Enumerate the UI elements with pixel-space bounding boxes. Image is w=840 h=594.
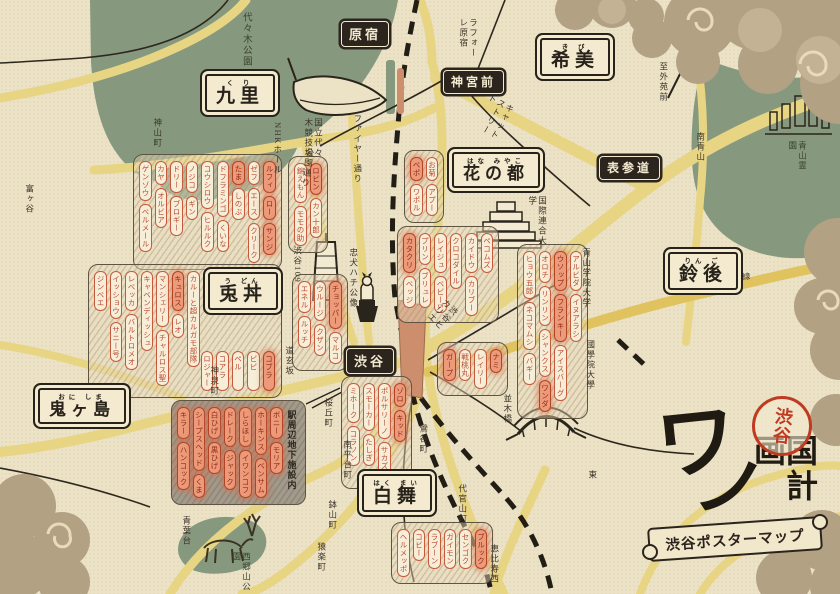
poster-label: 白ひげ — [208, 407, 221, 439]
poster-label: ペル — [232, 351, 245, 391]
poster-label: ベポ — [410, 157, 423, 181]
label-aoyama-gakuin: 青山学院大学 — [581, 248, 591, 308]
poster-label: サニー号 — [110, 322, 123, 362]
label-to-gaienmae: 至外苑前 — [658, 62, 668, 102]
label-laforet-harajuku: ラフォーレ原宿 — [458, 18, 478, 64]
label-hachiko-statue: 忠犬ハチ公像 — [348, 248, 358, 308]
poster-label: リンリン — [539, 286, 552, 326]
poster-label: シープスヘッド — [193, 407, 206, 471]
poster-label: モリア — [270, 442, 283, 474]
poster-label: ワポル — [410, 184, 423, 216]
poster-label: ルッチ — [298, 316, 311, 348]
poster-label: レベッカ — [125, 271, 138, 311]
poster-label: ドリー — [170, 161, 183, 193]
poster-label: ウルージ — [314, 281, 327, 321]
region-hananomiyako: はな みやこ 花の都 — [452, 152, 540, 188]
poster-label: クザン — [314, 324, 327, 356]
poster-label: ガイモン — [444, 529, 457, 569]
poster-label: ボニー — [270, 407, 283, 439]
label-nhk-hall: NHKホール — [272, 122, 282, 175]
poster-label: 黒ひげ — [208, 442, 221, 474]
label-shibuya-109: 渋谷109 — [292, 246, 302, 283]
poster-label: コウシロウ — [201, 161, 214, 209]
label-aoyama-cemetery: 青山霊園 — [787, 141, 807, 179]
station-omotesando: 表参道 — [599, 156, 660, 180]
poster-label: ドレーク — [224, 407, 237, 447]
banner-scroll-end-right — [812, 514, 828, 530]
poster-cluster-109: エネルルッチウルージクザンチョッパーマルコ — [292, 274, 348, 371]
poster-label: ラブーン — [428, 529, 441, 569]
poster-label: チャルロス聖 — [156, 330, 169, 386]
region-hakumai: はく まい 白舞 — [362, 474, 432, 512]
region-ringo: りん ご 鈴後 — [668, 252, 738, 290]
poster-label: ブリュレ — [419, 268, 432, 308]
poster-label: キッド — [394, 410, 407, 442]
poster-label: フランキー — [554, 294, 567, 342]
poster-label: レオ — [172, 314, 185, 338]
poster-label: たしぎ — [363, 434, 376, 466]
poster-label: ベンサム — [255, 458, 268, 498]
region-udon: う どん 兎丼 — [208, 272, 278, 310]
poster-cluster-kuri: ゲンゾウベルメールカヤオルビアドリーブロギーノジコギンコウシロウヒルルクドフラミ… — [133, 154, 282, 270]
poster-label: ベルメール — [139, 204, 152, 252]
poster-label: ベッジ — [403, 276, 416, 308]
label-yoyogi-park: 代々木公園 — [240, 12, 251, 67]
poster-label: カリブー — [465, 276, 478, 316]
station-shibuya: 渋谷 — [346, 348, 394, 374]
poster-label: エネル — [298, 281, 311, 313]
poster-label: ブロギー — [170, 196, 183, 236]
poster-label: ゼフ — [248, 161, 261, 185]
poster-label: レイリー — [474, 349, 487, 389]
poster-label: ウソップ — [554, 251, 567, 291]
poster-label: ジンベエ — [94, 271, 107, 311]
poster-label: サンジ — [263, 223, 276, 255]
poster-label: しらほし — [239, 407, 252, 447]
poster-label: シャンクス — [539, 329, 552, 377]
poster-label: ロー — [263, 196, 276, 220]
region-onigashima: おに しま 鬼ヶ島 — [38, 388, 126, 424]
underground-note: 駅周辺地下施設内 — [286, 410, 299, 490]
shibuya-poster-map: 原宿 神宮前 表参道 渋谷 く り 九里 き び 希美 はな みやこ 花の都 う… — [0, 0, 840, 594]
poster-cluster-station-east: ガープ戦桃丸レイリーナミ — [437, 342, 508, 396]
poster-cluster-underground: 駅周辺地下施設内 キラーハンコックシープスヘッドくま白ひげ黒ひげドレークジャック… — [171, 400, 306, 505]
poster-label: ヒルルク — [201, 212, 214, 252]
poster-label: バルトロメオ — [125, 314, 138, 370]
station-harajuku: 原宿 — [341, 21, 389, 47]
poster-label: バギー — [523, 353, 536, 385]
poster-label: 戦桃丸 — [459, 349, 472, 381]
poster-label: ドフラミンゴ — [217, 161, 230, 217]
poster-label: くいな — [217, 220, 230, 252]
banner-scroll-end-left — [642, 544, 658, 560]
poster-label: ビビ — [247, 351, 260, 391]
poster-label: マンシェリー — [156, 271, 169, 327]
label-saigoyama-park: 西郷山公園 — [231, 552, 251, 594]
label-kokugakuin: 國學院大學 — [585, 340, 595, 390]
region-kuri: く り 九里 — [205, 74, 275, 112]
region-kibi: き び 希美 — [540, 38, 610, 76]
poster-label: カイドウ — [465, 233, 478, 273]
label-aobadai: 青葉台 — [181, 516, 191, 546]
poster-label: ミホーク — [347, 383, 360, 423]
poster-label: ネコマムシ — [523, 302, 536, 350]
label-ebisu-nishi: 恵比寿西 — [489, 544, 499, 584]
label-daikanyamacho: 代官山町 — [457, 484, 467, 524]
label-higashi: 東 — [587, 470, 597, 480]
poster-label: たま — [232, 161, 245, 185]
poster-label: ヒョウ五郎 — [523, 251, 536, 299]
poster-label: ホーキンス — [255, 407, 268, 455]
label-tomigaya: 富ヶ谷 — [24, 184, 34, 214]
label-sarugakucho: 猿楽町 — [316, 542, 326, 572]
poster-label: カタクリ — [403, 233, 416, 273]
label-fire-dori: ファイヤー通り — [352, 114, 362, 184]
hachiko-statue-illustration — [356, 272, 378, 322]
poster-label: カルーと超カルガモ部隊 — [187, 271, 200, 367]
poster-label: ジャック — [224, 450, 237, 490]
label-dogenzaka: 道玄坂 — [284, 346, 294, 376]
poster-label: エース — [248, 188, 261, 220]
poster-label: ナミ — [490, 349, 503, 373]
label-kamiyamacho: 神山町 — [152, 118, 162, 148]
poster-label: モモの助 — [294, 206, 307, 246]
poster-label: キャベンディッシュ — [141, 271, 154, 351]
poster-label: ヘルメッポ — [397, 529, 410, 577]
poster-label: コブラ — [263, 351, 276, 391]
label-shinsencho: 神泉町 — [209, 366, 219, 396]
station-jingumae: 神宮前 — [443, 70, 504, 94]
poster-label: お菊 — [426, 157, 439, 181]
poster-label: ペコムズ — [481, 233, 494, 273]
label-hachiyamacho: 鉢山町 — [327, 500, 337, 530]
poster-label: レイジュ — [434, 233, 447, 273]
label-sakuragaokacho: 桜丘町 — [323, 398, 333, 428]
poster-cluster-hananomiyako-west: ベポワポルお菊アプー — [404, 150, 444, 223]
poster-label: オルビア — [155, 188, 168, 228]
poster-label: イワンコフ — [239, 450, 252, 498]
poster-label: しのぶ — [232, 188, 245, 220]
poster-label: スモーカー — [363, 383, 376, 431]
poster-label: マルコ — [329, 332, 342, 364]
poster-label: ギン — [186, 196, 199, 220]
harajuku-platform-shape — [397, 68, 404, 114]
poster-label: イッショウ — [110, 271, 123, 319]
poster-label: チョッパー — [329, 281, 342, 329]
poster-label: ポルサリーノ — [378, 383, 391, 439]
poster-label: キラー — [177, 407, 190, 439]
poster-label: プリン — [419, 233, 432, 265]
poster-label: ゲンゾウ — [139, 161, 152, 201]
poster-label: センゴク — [459, 529, 472, 569]
poster-label: ワンダ — [539, 380, 552, 412]
label-namikibashi: 並木橋 — [502, 394, 512, 424]
label-minami-aoyama: 南青山 — [695, 132, 705, 162]
poster-label: クリーク — [248, 223, 261, 263]
poster-label: アプー — [426, 184, 439, 216]
label-uguisudanicho: 鶯谷町 — [418, 424, 428, 454]
poster-label: オロチ — [539, 251, 552, 283]
poster-label: カン十郎 — [310, 198, 323, 238]
label-un-university: 国際連合大学 — [527, 196, 547, 246]
poster-label: ハンコック — [177, 442, 190, 490]
poster-label: ノジコ — [186, 161, 199, 193]
poster-label: ガープ — [443, 349, 456, 381]
poster-label: ブルック — [475, 529, 488, 569]
poster-label: クロコダイル — [450, 233, 463, 289]
label-nanpeidaicho: 南平台町 — [342, 440, 352, 480]
poster-cluster-daikanyama: ヘルメッポコビーラブーンガイモンセンゴクブルック — [391, 522, 493, 584]
poster-label: くま — [193, 474, 206, 498]
poster-label: キュロス — [172, 271, 185, 311]
poster-label: カヤ — [155, 161, 168, 185]
poster-label: コビー — [413, 529, 426, 561]
poster-label: ゾロ — [394, 383, 407, 407]
poster-label: アイスバーグ — [554, 345, 567, 401]
poster-cluster-aoyama: ヒョウ五郎ネコマムシバギーオロチリンリンシャンクスワンダウソップフランキーアイス… — [517, 244, 588, 419]
